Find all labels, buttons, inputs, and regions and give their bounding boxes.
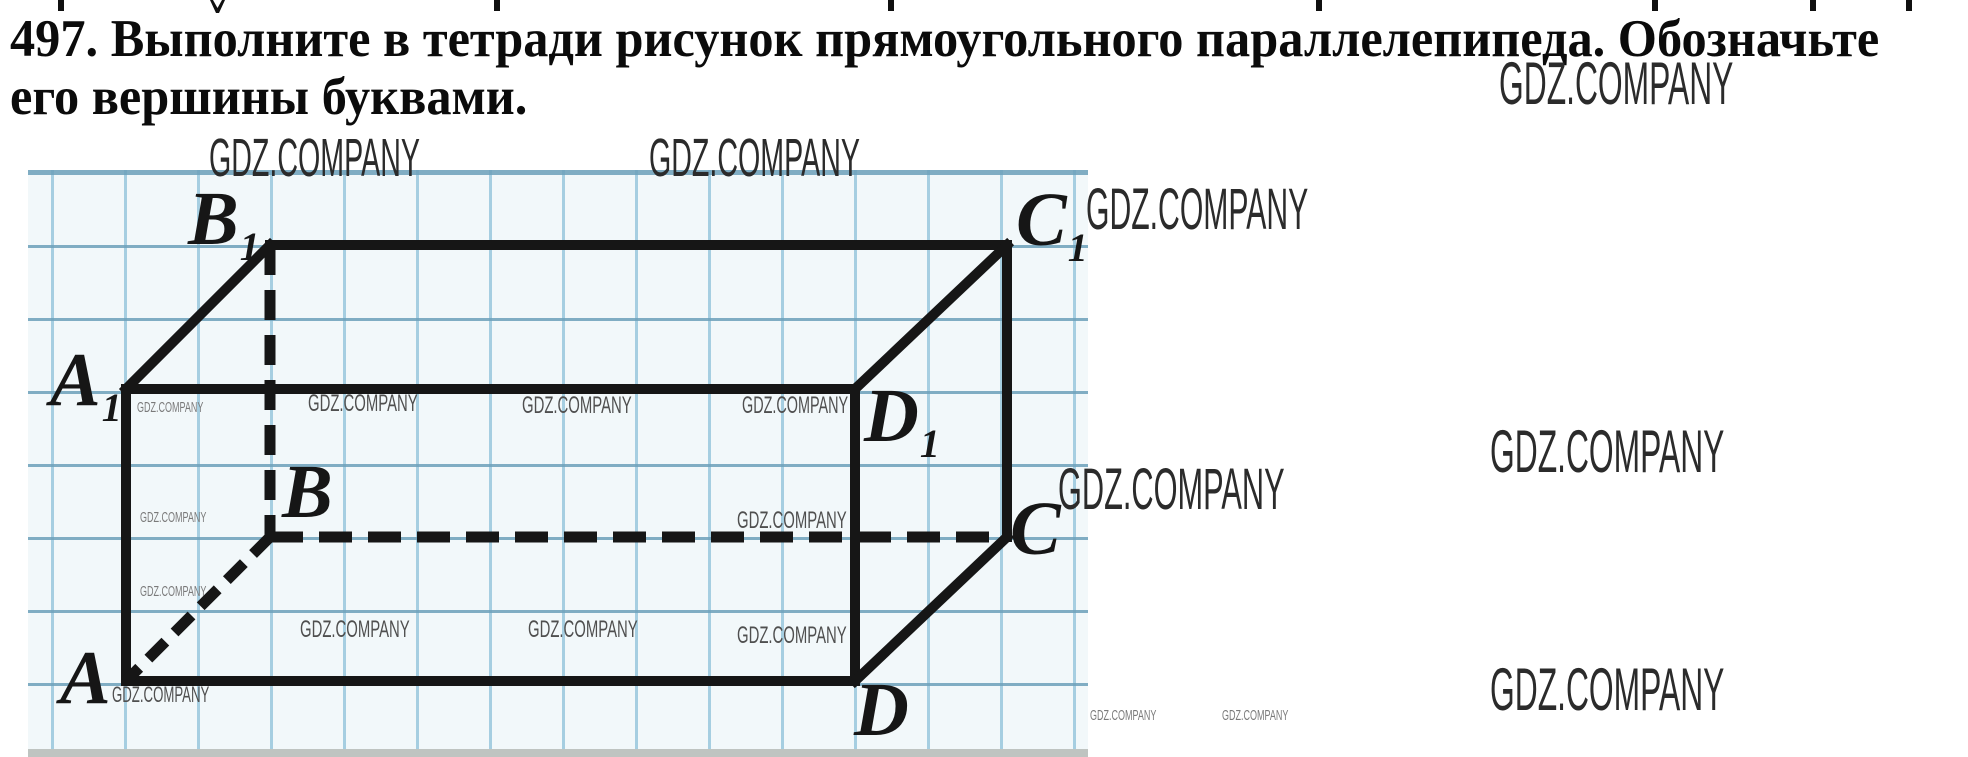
gdz-watermark-text: GDZ.COMPANY	[300, 618, 410, 642]
gdz-watermark-text: GDZ.COMPANY	[737, 509, 847, 533]
gdz-watermark-text: GDZ.COMPANY	[1222, 708, 1288, 723]
gdz-watermark-text: GDZ.COMPANY	[308, 392, 418, 416]
vertex-subscript: 1	[1068, 225, 1088, 270]
vertex-label-D1: D1	[864, 378, 940, 464]
scanned-textbook-page: 497. Выполните в тетради рисунок прямоуг…	[0, 0, 1968, 757]
vertex-label-B1: B1	[188, 181, 260, 267]
gdz-watermark-text: GDZ.COMPANY	[1490, 422, 1724, 482]
vertex-letter: C	[1010, 487, 1061, 571]
gdz-watermark: GDZ.COMPANY	[649, 131, 1047, 185]
gdz-watermark: GDZ.COMPANY	[1499, 54, 1941, 114]
vertex-label-C1: C1	[1016, 182, 1088, 268]
gdz-watermark-text: GDZ.COMPANY	[1090, 708, 1156, 723]
gdz-watermark: GDZ.COMPANY	[1490, 422, 1932, 482]
gdz-watermark-text: GDZ.COMPANY	[140, 510, 206, 525]
gdz-watermark: GDZ.COMPANY	[742, 394, 919, 418]
gdz-watermark-text: GDZ.COMPANY	[737, 624, 847, 648]
gdz-watermark-text: GDZ.COMPANY	[742, 394, 848, 418]
vertex-subscript: 1	[920, 421, 940, 466]
gdz-watermark: GDZ.COMPANY	[1086, 181, 1514, 239]
gdz-watermark: GDZ.COMPANY	[528, 618, 705, 642]
vertex-label-A1: A1	[50, 342, 122, 428]
vertex-letter: B	[188, 177, 239, 261]
gdz-watermark: GDZ.COMPANY	[737, 624, 914, 648]
vertex-letter: B	[282, 450, 333, 534]
gdz-watermark: GDZ.COMPANY	[140, 510, 251, 525]
edge-B-A-hidden	[126, 537, 270, 681]
gdz-watermark-text: GDZ.COMPANY	[1086, 181, 1308, 239]
gdz-watermark: GDZ.COMPANY	[137, 400, 248, 415]
gdz-watermark: GDZ.COMPANY	[300, 618, 477, 642]
gdz-watermark-text: GDZ.COMPANY	[522, 394, 632, 418]
gdz-watermark: GDZ.COMPANY	[140, 584, 251, 599]
gdz-watermark-text: GDZ.COMPANY	[140, 584, 206, 599]
vertex-subscript: 1	[102, 385, 122, 430]
gdz-watermark: GDZ.COMPANY	[1090, 708, 1201, 723]
vertex-letter: A	[60, 636, 111, 720]
vertex-letter: C	[1016, 178, 1067, 262]
gdz-watermark-text: GDZ.COMPANY	[649, 131, 860, 185]
gdz-watermark: GDZ.COMPANY	[737, 509, 914, 533]
vertex-label-D: D	[854, 672, 909, 748]
gdz-watermark: GDZ.COMPANY	[522, 394, 699, 418]
gdz-watermark-text: GDZ.COMPANY	[112, 684, 209, 706]
vertex-letter: D	[854, 668, 909, 752]
gdz-watermark-text: GDZ.COMPANY	[137, 400, 203, 415]
vertex-label-A: A	[60, 640, 111, 716]
edge-D-C	[855, 537, 1007, 681]
edge-C1-D1	[855, 245, 1007, 389]
gdz-watermark-text: GDZ.COMPANY	[1058, 461, 1285, 519]
vertex-label-C: C	[1010, 491, 1061, 567]
gdz-watermark: GDZ.COMPANY	[1058, 461, 1486, 519]
gdz-watermark-text: GDZ.COMPANY	[1490, 660, 1724, 720]
vertex-letter: A	[50, 338, 101, 422]
gdz-watermark-text: GDZ.COMPANY	[209, 131, 420, 185]
vertex-label-B: B	[282, 454, 333, 530]
gdz-watermark: GDZ.COMPANY	[209, 131, 607, 185]
gdz-watermark: GDZ.COMPANY	[112, 684, 274, 706]
gdz-watermark-text: GDZ.COMPANY	[1499, 54, 1733, 114]
gdz-watermark: GDZ.COMPANY	[1222, 708, 1333, 723]
vertex-subscript: 1	[240, 224, 260, 269]
gdz-watermark: GDZ.COMPANY	[1490, 660, 1932, 720]
gdz-watermark: GDZ.COMPANY	[308, 392, 485, 416]
gdz-watermark-text: GDZ.COMPANY	[528, 618, 638, 642]
